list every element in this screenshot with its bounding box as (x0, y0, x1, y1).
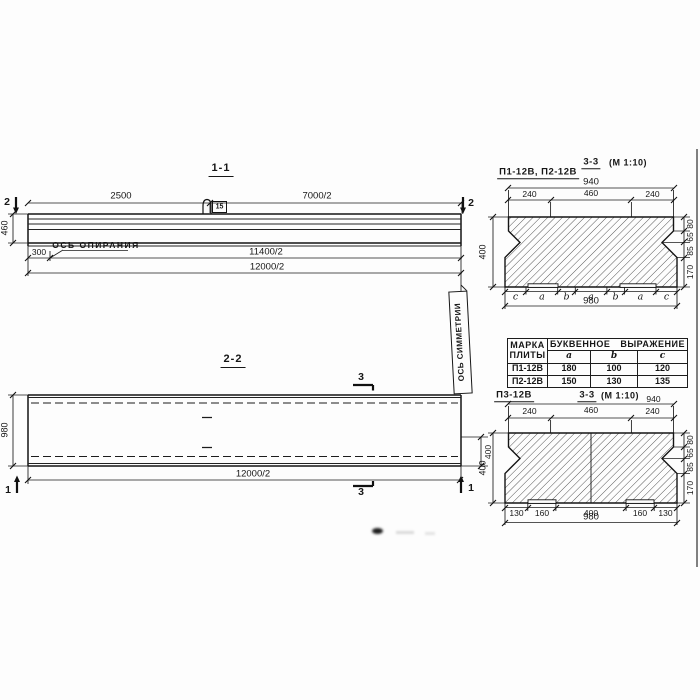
dim-11400-label: 11400/2 (249, 247, 283, 257)
beam-inner-lines (28, 219, 461, 464)
groove (528, 500, 556, 504)
dim-400-plan-label: 400 (484, 445, 493, 459)
table-col-a: a (548, 351, 591, 363)
dim-80-label: 80 (686, 435, 695, 444)
cut-3-bottom-label: 3 (358, 487, 364, 498)
scan-smudge (396, 531, 414, 534)
dim-7000-label: 7000/2 (302, 191, 331, 201)
scan-smudge (425, 532, 435, 535)
engineering-drawing: 1-1 2500 7000/2 2 2 460 300 ОСЬ ОПИРАНИЯ… (0, 0, 700, 700)
dim-85-label: 85 (686, 246, 695, 255)
row-b: 130 (591, 375, 638, 387)
dim-12000-plan-label: 12000/2 (236, 469, 270, 479)
dim-240-label: 240 (522, 407, 536, 416)
dim-400-bot-label: 400 (479, 460, 488, 475)
cross-section-p1-p2 (505, 217, 677, 287)
dim-240-label: 240 (645, 407, 659, 416)
table-row: П2-12В 150 130 135 (508, 375, 688, 387)
dim-980-plan-label: 980 (1, 422, 10, 437)
dim-2500-label: 2500 (110, 191, 131, 201)
section-3-3-bot-title: 3-3 (577, 390, 596, 402)
cut-2-right-label: 2 (468, 198, 474, 209)
dim-300-label: 300 (32, 247, 46, 256)
dim-460-mid-label: 460 (584, 406, 598, 415)
row-c: 120 (638, 363, 688, 375)
dim-240-label: 240 (522, 190, 536, 199)
letter-b: b (563, 292, 569, 302)
section-3-3-bot-scale: (М 1:10) (601, 392, 639, 401)
row-mark: П2-12В (508, 375, 548, 387)
letter-a: a (539, 292, 545, 302)
dim-170-label: 170 (686, 481, 695, 495)
table-col-c: c (638, 351, 688, 363)
dim-400-top-label: 400 (479, 244, 488, 259)
dim-160-label: 160 (535, 509, 549, 518)
dim-65-label: 65 (686, 232, 695, 241)
row-a: 180 (548, 363, 591, 375)
cut-1-left-label: 1 (5, 485, 11, 496)
row-c: 135 (638, 375, 688, 387)
dim-130-label: 130 (509, 509, 523, 518)
table-col-b: b (591, 351, 638, 363)
cut-1-right-label: 1 (468, 483, 474, 494)
slab-parameter-table: МАРКА ПЛИТЫ БУКВЕННОЕ ВЫРАЖЕНИЕ a b c П1… (507, 338, 688, 388)
dim-460-mid-label: 460 (584, 189, 598, 198)
dashed-lines (31, 403, 458, 457)
table-header-expression: БУКВЕННОЕ ВЫРАЖЕНИЕ (548, 339, 688, 351)
row-mark: П1-12В (508, 363, 548, 375)
letter-c: c (664, 292, 669, 302)
groove (620, 284, 656, 288)
section-3-3-top-scale: (М 1:10) (609, 159, 647, 168)
dim-460-label: 460 (1, 220, 10, 235)
row-b: 100 (591, 363, 638, 375)
letter-b: b (612, 292, 618, 302)
cut-3-top-label: 3 (358, 372, 364, 383)
dim-170-label: 170 (686, 265, 695, 279)
dim-160-label: 160 (633, 509, 647, 518)
groove (528, 284, 558, 288)
bearing-axis-label: ОСЬ ОПИРАНИЯ (52, 241, 139, 250)
dim-940-top-label: 940 (583, 177, 599, 187)
dim-940-bot-label: 940 (646, 394, 660, 403)
dim-980-top-label: 980 (583, 296, 599, 306)
letter-c: c (513, 292, 518, 302)
dim-12000-label: 12000/2 (250, 262, 284, 272)
groove (626, 500, 654, 504)
symmetry-axis-label: ОСЬ СИММЕТРИИ (454, 303, 466, 382)
row-a: 150 (548, 375, 591, 387)
section-1-1-title: 1-1 (209, 163, 234, 177)
table-header-mark: МАРКА ПЛИТЫ (508, 339, 548, 364)
letter-a: a (638, 292, 644, 302)
center-dashes (202, 418, 212, 448)
dim-80-label: 80 (686, 219, 695, 228)
section-bot-mark-label: П3-12В (494, 390, 534, 402)
dim-85-label: 85 (686, 462, 695, 471)
dim-980-bot-label: 980 (583, 512, 599, 522)
section-2-2-title: 2-2 (221, 354, 246, 368)
scan-smudge (372, 528, 383, 534)
beam-outline (28, 214, 461, 466)
section-top-mark-label: П1-12В, П2-12В (497, 167, 579, 179)
dim-240-label: 240 (645, 190, 659, 199)
cut-2-left-label: 2 (4, 197, 10, 208)
loop-tag-label: 15 (216, 204, 224, 211)
section-3-3-top-title: 3-3 (581, 157, 600, 169)
dim-65-label: 65 (686, 448, 695, 457)
dim-130-label: 130 (658, 509, 672, 518)
table-row: П1-12В 180 100 120 (508, 363, 688, 375)
